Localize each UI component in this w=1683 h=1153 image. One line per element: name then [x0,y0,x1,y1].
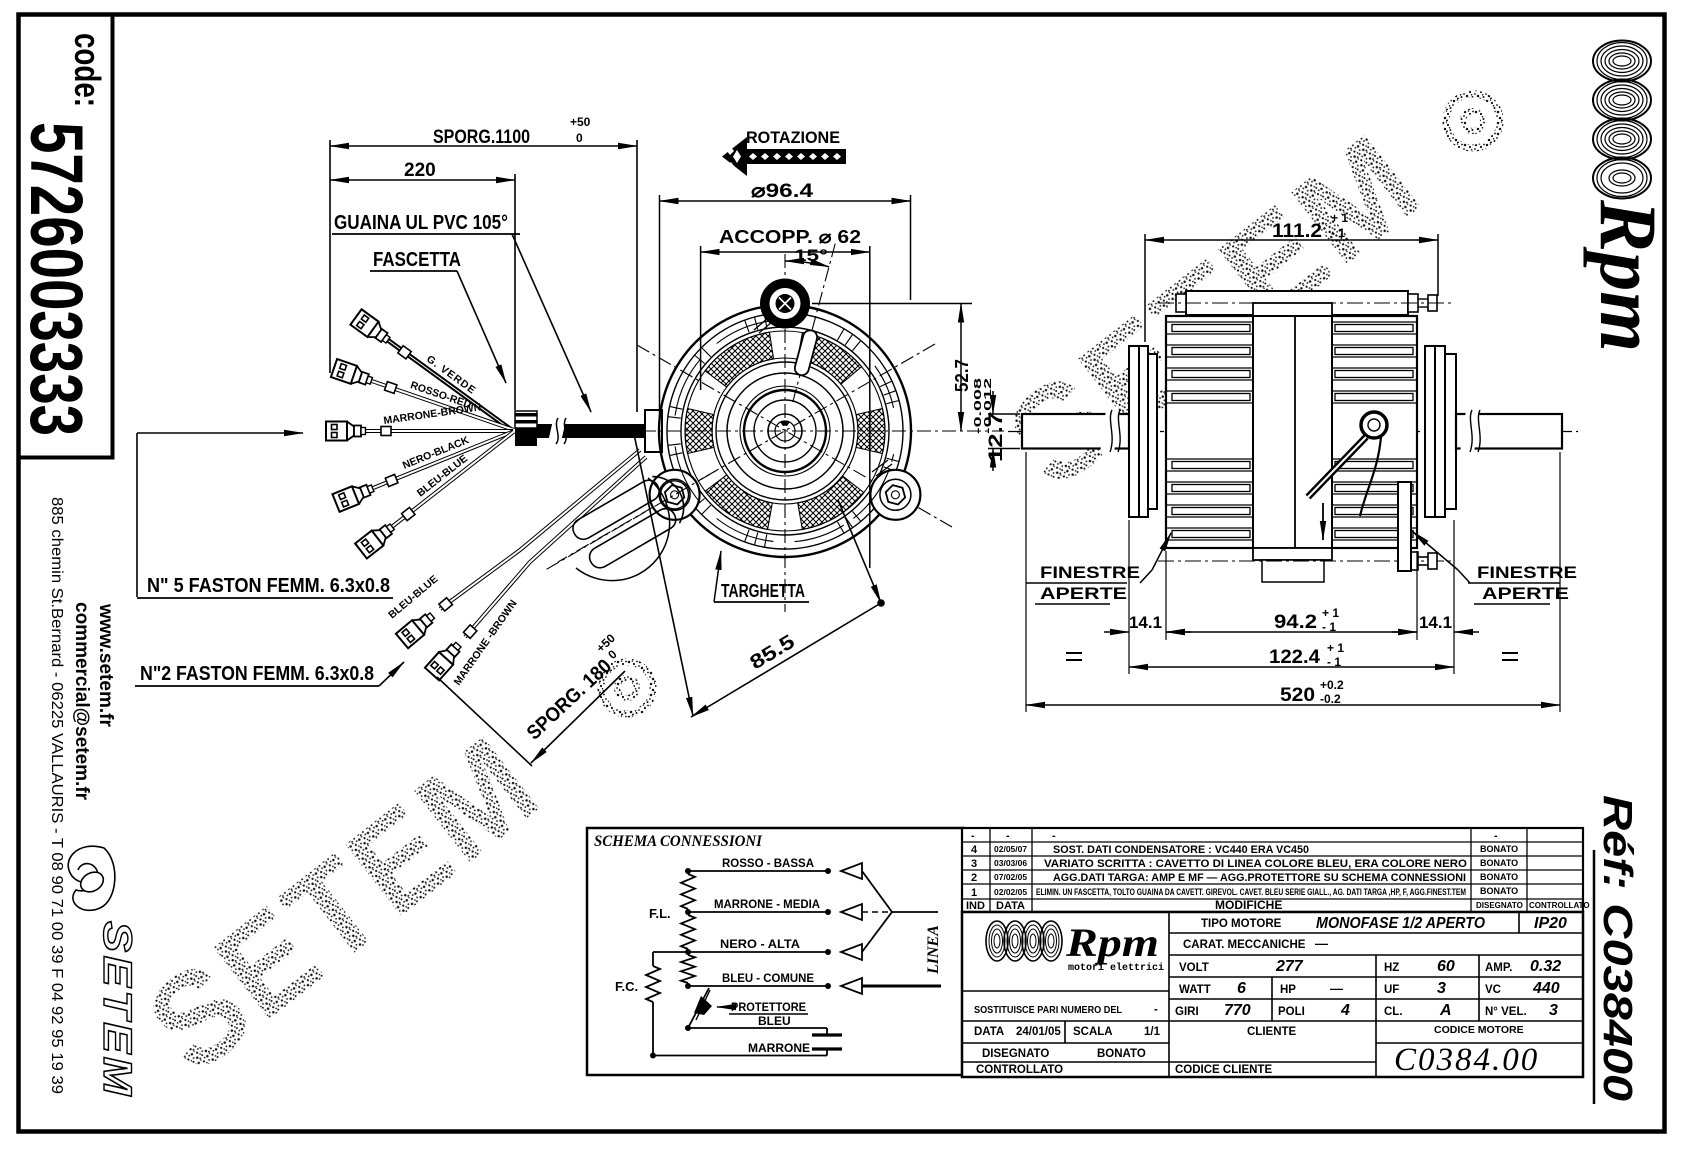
svg-text:2: 2 [971,872,977,884]
svg-text:BONATO: BONATO [1097,1048,1146,1060]
svg-text:520: 520 [1280,685,1315,706]
svg-text:SCALA: SCALA [1073,1026,1113,1038]
svg-text:—: — [1315,936,1328,951]
svg-text:1/1: 1/1 [1144,1026,1161,1038]
svg-text:770: 770 [1224,1002,1251,1019]
svg-text:IND: IND [966,900,985,912]
svg-text:4: 4 [1340,1002,1350,1019]
svg-text:VC: VC [1485,984,1501,996]
svg-text:UF: UF [1384,984,1399,996]
svg-text:CL.: CL. [1384,1006,1403,1018]
svg-text:APERTE: APERTE [1482,584,1569,603]
svg-text:C0384.00: C0384.00 [1394,1042,1539,1078]
svg-text:-: - [1052,830,1056,842]
svg-text:CONTROLLATO: CONTROLLATO [976,1064,1063,1076]
svg-text:-0.2: -0.2 [1320,692,1341,706]
svg-text:F.L.: F.L. [649,906,671,921]
svg-text:WATT: WATT [1179,984,1211,996]
svg-text:5726003333: 5726003333 [15,122,98,436]
svg-text:-: - [1494,830,1498,842]
svg-text:Rpm: Rpm [1583,199,1674,352]
svg-text:TIPO MOTORE: TIPO MOTORE [1201,918,1282,930]
svg-text:VOLT: VOLT [1179,962,1209,974]
svg-text:DATA: DATA [974,1026,1004,1038]
svg-text:BONATO: BONATO [1480,858,1518,868]
svg-text:14.1: 14.1 [1129,613,1162,632]
svg-text:-: - [1006,830,1010,842]
svg-text:CODICE MOTORE: CODICE MOTORE [1434,1024,1524,1036]
svg-text:F.C.: F.C. [615,979,638,994]
svg-text:GUAINA UL PVC 105°: GUAINA UL PVC 105° [334,212,508,234]
svg-text:52.7: 52.7 [952,359,972,392]
svg-text:+50: +50 [570,115,591,129]
svg-text:02/05/07: 02/05/07 [994,844,1027,854]
svg-text:- 1: - 1 [1327,655,1341,669]
svg-text:ELIMIN. UN FASCETTA, TOLTO GUA: ELIMIN. UN FASCETTA, TOLTO GUAINA DA CAV… [1036,887,1466,897]
svg-text:6: 6 [1237,980,1246,997]
svg-text:FASCETTA: FASCETTA [373,249,461,271]
svg-text:POLI: POLI [1278,1006,1305,1018]
svg-text:94.2: 94.2 [1274,612,1317,633]
svg-text:LINEA: LINEA [925,925,942,975]
svg-text:BONATO: BONATO [1480,886,1518,896]
svg-text:IP20: IP20 [1534,915,1567,932]
svg-text:DATA: DATA [996,900,1025,912]
svg-text:⌀96.4: ⌀96.4 [751,181,814,202]
svg-text:4: 4 [971,844,978,856]
svg-text:+0.2: +0.2 [1320,678,1344,692]
svg-text:0.32: 0.32 [1530,958,1561,975]
svg-text:www.setem.fr: www.setem.fr [95,603,116,727]
svg-text:BONATO: BONATO [1480,844,1518,854]
svg-text:MODIFICHE: MODIFICHE [1215,898,1282,912]
svg-text:CARAT. MECCANICHE: CARAT. MECCANICHE [1183,939,1306,951]
svg-text:- 1: - 1 [1322,620,1336,634]
svg-text:0: 0 [576,131,583,145]
svg-text:FINESTRE: FINESTRE [1040,563,1140,582]
svg-text:ROSSO - BASSA: ROSSO - BASSA [722,856,814,870]
svg-text:02/02/05: 02/02/05 [994,887,1027,897]
svg-text:ACCOPP. ⌀ 62: ACCOPP. ⌀ 62 [719,227,861,247]
svg-text:-: - [1154,1004,1158,1016]
svg-text:+ 1: + 1 [1327,641,1344,655]
svg-text:MARRONE - MEDIA: MARRONE - MEDIA [714,897,820,911]
svg-text:TARGHETTA: TARGHETTA [721,581,805,601]
svg-text:3: 3 [1437,980,1446,997]
svg-text:15°: 15° [794,246,828,265]
svg-text:-0.012: -0.012 [983,377,994,434]
svg-text:commercial@setem.fr: commercial@setem.fr [71,602,92,801]
svg-text:PROTETTORE: PROTETTORE [731,1000,806,1014]
svg-text:Rpm: Rpm [1065,920,1159,965]
svg-text:MARRONE: MARRONE [748,1041,810,1055]
svg-text:24/01/05: 24/01/05 [1016,1026,1061,1038]
svg-text:CONTROLLATO: CONTROLLATO [1529,901,1590,910]
svg-text:MONOFASE 1/2 APERTO: MONOFASE 1/2 APERTO [1316,915,1485,932]
svg-text:A: A [1439,1002,1452,1019]
svg-text:N° VEL.: N° VEL. [1485,1006,1527,1018]
svg-text:07/02/05: 07/02/05 [994,872,1027,882]
svg-text:14.1: 14.1 [1419,613,1452,632]
svg-text:+ 1: + 1 [1331,211,1348,225]
svg-text:NERO - ALTA: NERO - ALTA [720,937,800,951]
svg-text:HP: HP [1280,984,1296,996]
svg-text:SETEM: SETEM [95,921,139,1099]
svg-text:AMP.: AMP. [1485,962,1512,974]
svg-text:SCHEMA CONNESSIONI: SCHEMA CONNESSIONI [594,833,763,850]
svg-text:3: 3 [971,858,977,870]
svg-text:BLEU - COMUNE: BLEU - COMUNE [722,971,814,985]
svg-text:—: — [1330,981,1343,996]
svg-text:BONATO: BONATO [1480,872,1518,882]
svg-text:DISEGNATO: DISEGNATO [982,1048,1049,1060]
svg-text:- 1: - 1 [1331,226,1345,240]
svg-text:SPORG.1100: SPORG.1100 [433,127,530,148]
svg-text:code:: code: [67,33,108,107]
svg-text:+ 1: + 1 [1322,606,1339,620]
svg-text:N"2 FASTON FEMM. 6.3x0.8: N"2 FASTON FEMM. 6.3x0.8 [140,663,374,685]
svg-text:Réf: C038400: Réf: C038400 [1595,795,1641,1101]
svg-text:ROTAZIONE: ROTAZIONE [746,128,840,147]
svg-text:03/03/06: 03/03/06 [994,858,1027,868]
svg-text:SOSTITUISCE PARI NUMERO DEL: SOSTITUISCE PARI NUMERO DEL [974,1005,1122,1016]
svg-text:N" 5 FASTON FEMM. 6.3x0.8: N" 5 FASTON FEMM. 6.3x0.8 [147,575,390,597]
svg-text:277: 277 [1275,958,1304,975]
svg-text:AGG.DATI TARGA: AMP E MF — AGG: AGG.DATI TARGA: AMP E MF — AGG.PROTETTOR… [1053,872,1466,884]
svg-text:VARIATO SCRITTA : CAVETTO D: VARIATO SCRITTA : CAVETTO DI LINEA COLOR… [1044,858,1467,870]
svg-text:FINESTRE: FINESTRE [1477,563,1577,582]
svg-text:motori elettrici: motori elettrici [1068,962,1164,974]
svg-text:DISEGNATO: DISEGNATO [1476,901,1523,910]
svg-text:BLEU: BLEU [758,1014,791,1028]
svg-text:122.4: 122.4 [1269,647,1320,668]
svg-text:SOST. DATI CONDENSATORE : VC44: SOST. DATI CONDENSATORE : VC440 ERA VC45… [1053,844,1309,856]
svg-text:60: 60 [1437,958,1455,975]
svg-text:3: 3 [1549,1002,1558,1019]
svg-text:111.2: 111.2 [1272,221,1322,242]
svg-text:GIRI: GIRI [1175,1006,1199,1018]
svg-text:CODICE CLIENTE: CODICE CLIENTE [1175,1064,1272,1076]
svg-text:-: - [971,830,975,842]
svg-text:885 chemin St.Bernard - 0622: 885 chemin St.Bernard - 06225 VALLAURIS … [48,497,65,1094]
svg-text:CLIENTE: CLIENTE [1247,1026,1297,1038]
svg-text:APERTE: APERTE [1040,584,1127,603]
svg-text:220: 220 [404,160,436,181]
svg-text:HZ: HZ [1384,962,1399,974]
svg-text:440: 440 [1532,980,1560,997]
svg-text:1: 1 [971,887,977,899]
